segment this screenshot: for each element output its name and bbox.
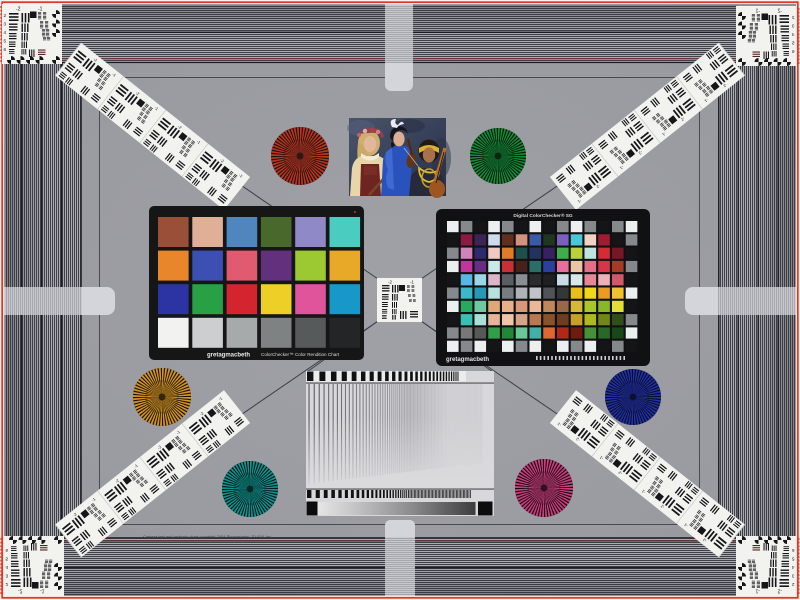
svg-text:Digital ColorChecker® SG: Digital ColorChecker® SG: [513, 212, 573, 219]
svg-text:ColorChecker™ Color Rendition: ColorChecker™ Color Rendition Chart: [261, 352, 340, 357]
svg-text:gretagmacbeth: gretagmacbeth: [207, 353, 250, 359]
svg-text:-2: -2: [388, 280, 392, 285]
svg-text:-1: -1: [410, 280, 414, 285]
svg-text:Camera test and analysis chart: Camera test and analysis chart copyright…: [143, 534, 272, 539]
svg-text:gretagmacbeth: gretagmacbeth: [446, 357, 489, 363]
